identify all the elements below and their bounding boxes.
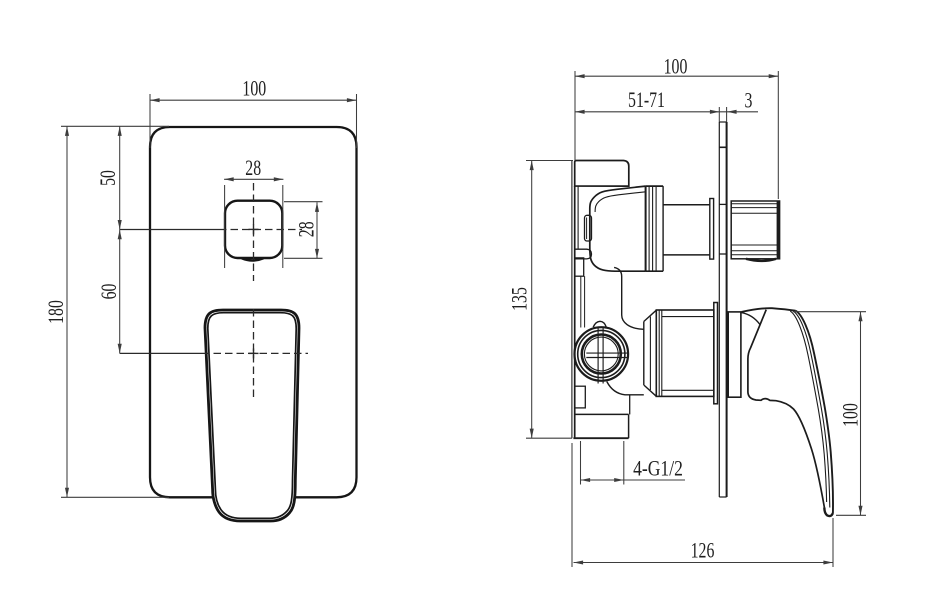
svg-text:51-71: 51-71 [628, 88, 665, 112]
svg-text:100: 100 [664, 55, 688, 79]
svg-text:3: 3 [745, 89, 753, 113]
svg-text:60: 60 [98, 284, 122, 300]
svg-text:28: 28 [295, 221, 319, 237]
svg-text:4-G1/2: 4-G1/2 [633, 457, 683, 481]
svg-text:126: 126 [691, 539, 715, 563]
svg-text:135: 135 [508, 287, 532, 311]
svg-text:28: 28 [245, 157, 261, 181]
svg-text:100: 100 [242, 77, 266, 101]
svg-text:100: 100 [839, 403, 863, 427]
svg-text:50: 50 [97, 170, 121, 186]
svg-text:180: 180 [45, 300, 69, 324]
